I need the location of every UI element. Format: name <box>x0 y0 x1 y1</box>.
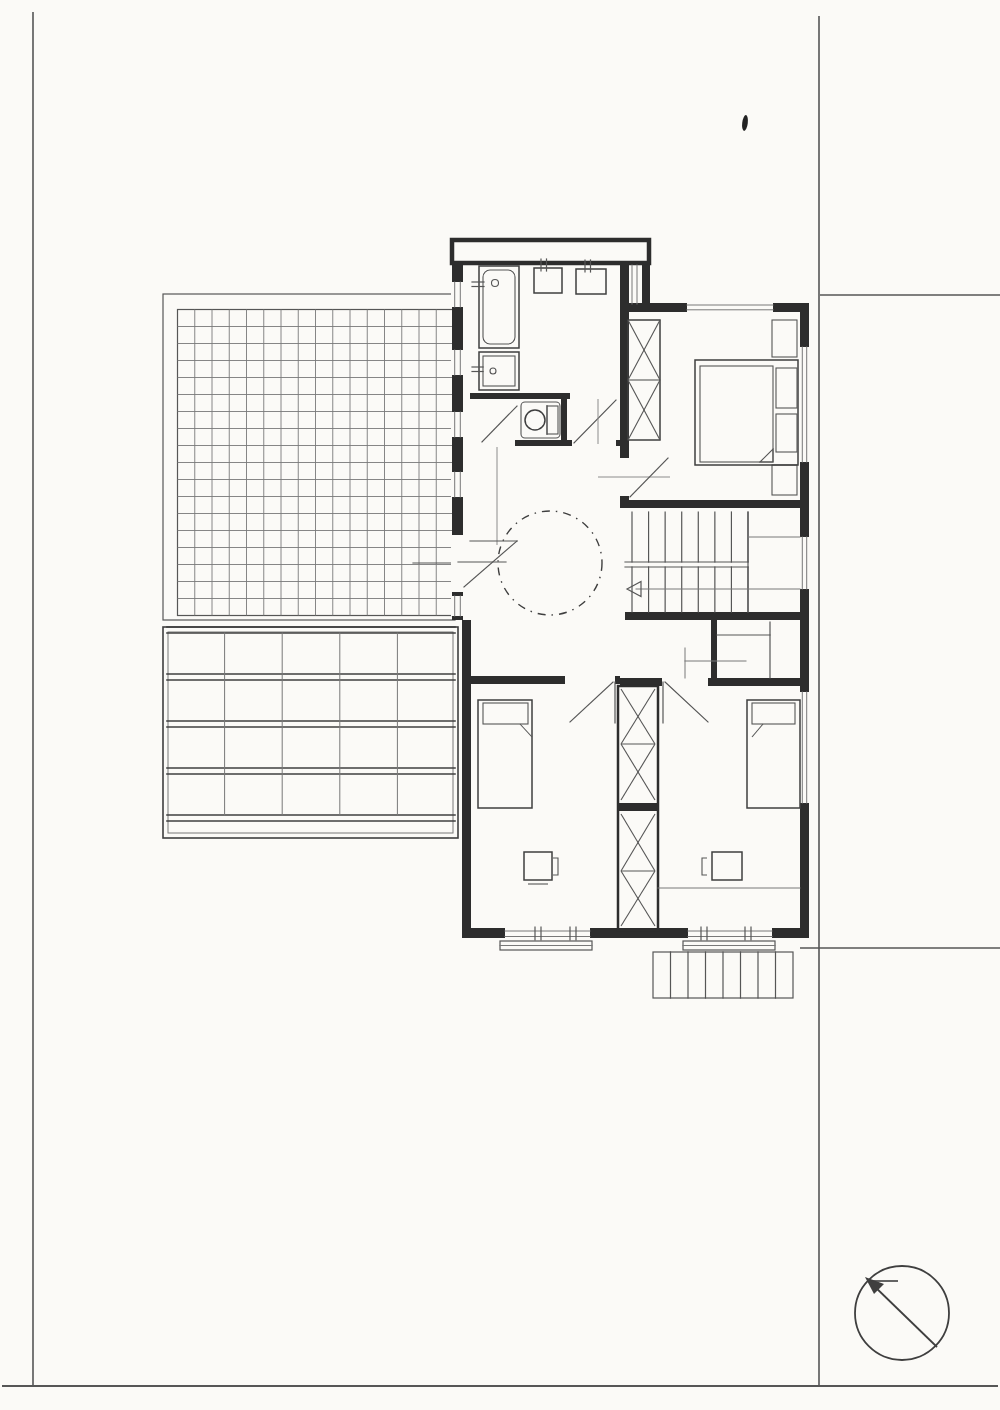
central-wardrobe <box>618 686 658 930</box>
west-window-4 <box>451 472 464 497</box>
interior-walls <box>462 263 809 686</box>
wc <box>482 402 560 545</box>
bathroom-door <box>574 399 616 444</box>
bedroom-right-wall-b <box>708 678 809 686</box>
shutter-slat-box <box>653 952 793 998</box>
single-bed-right <box>747 700 800 808</box>
master-nightstand <box>772 465 797 495</box>
west-window-1 <box>451 282 464 307</box>
north-arrow <box>855 1266 949 1360</box>
desk-left <box>524 852 558 884</box>
closet <box>685 622 770 678</box>
south-sill-left <box>500 941 592 950</box>
kids-bedrooms <box>478 682 800 930</box>
east-window-master <box>799 347 810 462</box>
floor-plan-scan <box>0 0 1000 1410</box>
pergola-frame <box>163 627 458 838</box>
west-window-3 <box>451 412 464 437</box>
wc-wall-top <box>470 393 570 399</box>
roof-terrace <box>163 294 457 620</box>
terrace-door-opening <box>451 535 464 592</box>
staircase <box>625 512 800 612</box>
pergola <box>163 627 458 838</box>
ink-blot <box>741 115 749 132</box>
wc-wall-bottom <box>515 440 572 446</box>
terrace-tile-grid <box>178 310 454 616</box>
bedroom-right-door <box>663 682 708 723</box>
north-arrow-head <box>865 1277 884 1294</box>
south-window-left <box>505 927 590 940</box>
east-window-landing <box>799 537 810 589</box>
master-north-window <box>687 302 773 313</box>
floor-plan-drawing <box>0 0 1000 1410</box>
north-arrow-shaft <box>871 1283 937 1347</box>
bath-master-wall-stub <box>620 496 629 508</box>
rooflight-dashed-circle <box>498 511 602 615</box>
stair-wall-bottom <box>625 612 809 620</box>
double-bed <box>695 360 798 465</box>
master-wardrobe <box>628 320 660 440</box>
toilet <box>521 402 560 438</box>
west-wall-lower <box>462 620 471 938</box>
closet-wall-left <box>711 620 717 684</box>
wc-door <box>482 406 517 545</box>
bathtub <box>472 266 519 348</box>
south-sill-right <box>683 941 775 950</box>
terrace-outer-frame <box>163 294 455 620</box>
hall <box>458 477 670 615</box>
terrace-door-swing <box>458 541 517 587</box>
bedroom-left-wall-a <box>462 676 565 684</box>
property-boundary-lines <box>2 12 1000 1386</box>
single-bed-left <box>478 700 532 808</box>
wc-wall-right <box>561 393 567 446</box>
bath-east-wall-b <box>642 263 650 308</box>
bedroom-left-wall-b <box>615 676 620 684</box>
pergola-frame-inner <box>168 632 453 833</box>
north-parapet-band <box>452 240 649 263</box>
master-cabinet <box>772 320 797 357</box>
bedroom-left-door <box>570 682 615 723</box>
west-window-5 <box>451 596 464 616</box>
stair-wall-top <box>628 500 809 508</box>
shower-tray <box>472 352 519 390</box>
bath-east-window <box>632 265 637 304</box>
south-window-right <box>688 927 772 940</box>
pergola-beams <box>167 627 455 821</box>
master-bedroom <box>628 320 798 497</box>
west-window-2 <box>451 350 464 375</box>
desk-right <box>702 852 742 880</box>
